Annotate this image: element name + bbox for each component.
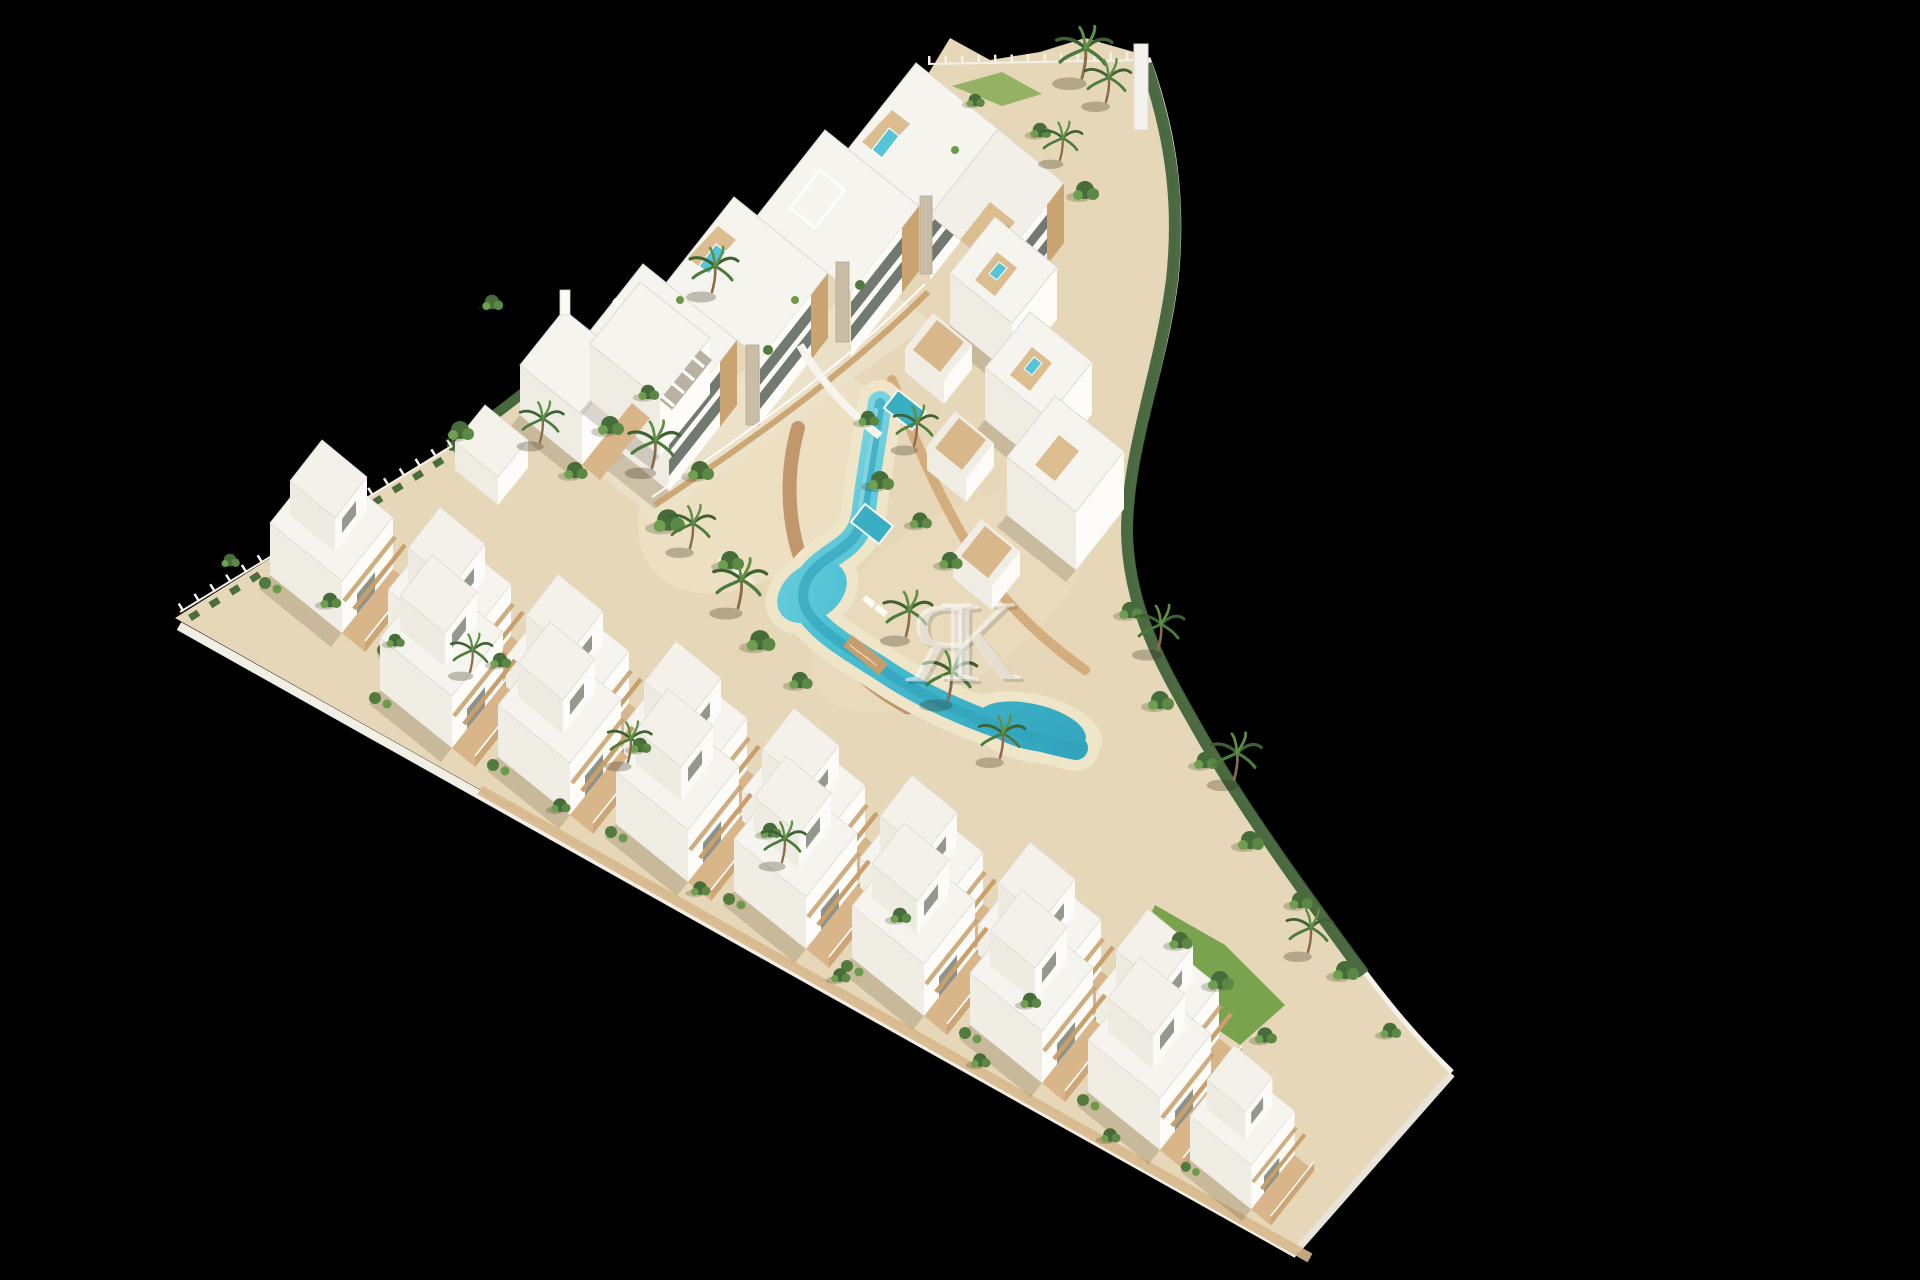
corner-wall — [1134, 44, 1148, 130]
render-canvas: Я K Я K — [0, 0, 1920, 1280]
render-stage: Я K Я K — [0, 0, 1920, 1280]
watermark-letter-k: K — [938, 577, 1022, 705]
chimney — [560, 290, 570, 315]
watermark: Я K Я K — [905, 577, 1025, 710]
